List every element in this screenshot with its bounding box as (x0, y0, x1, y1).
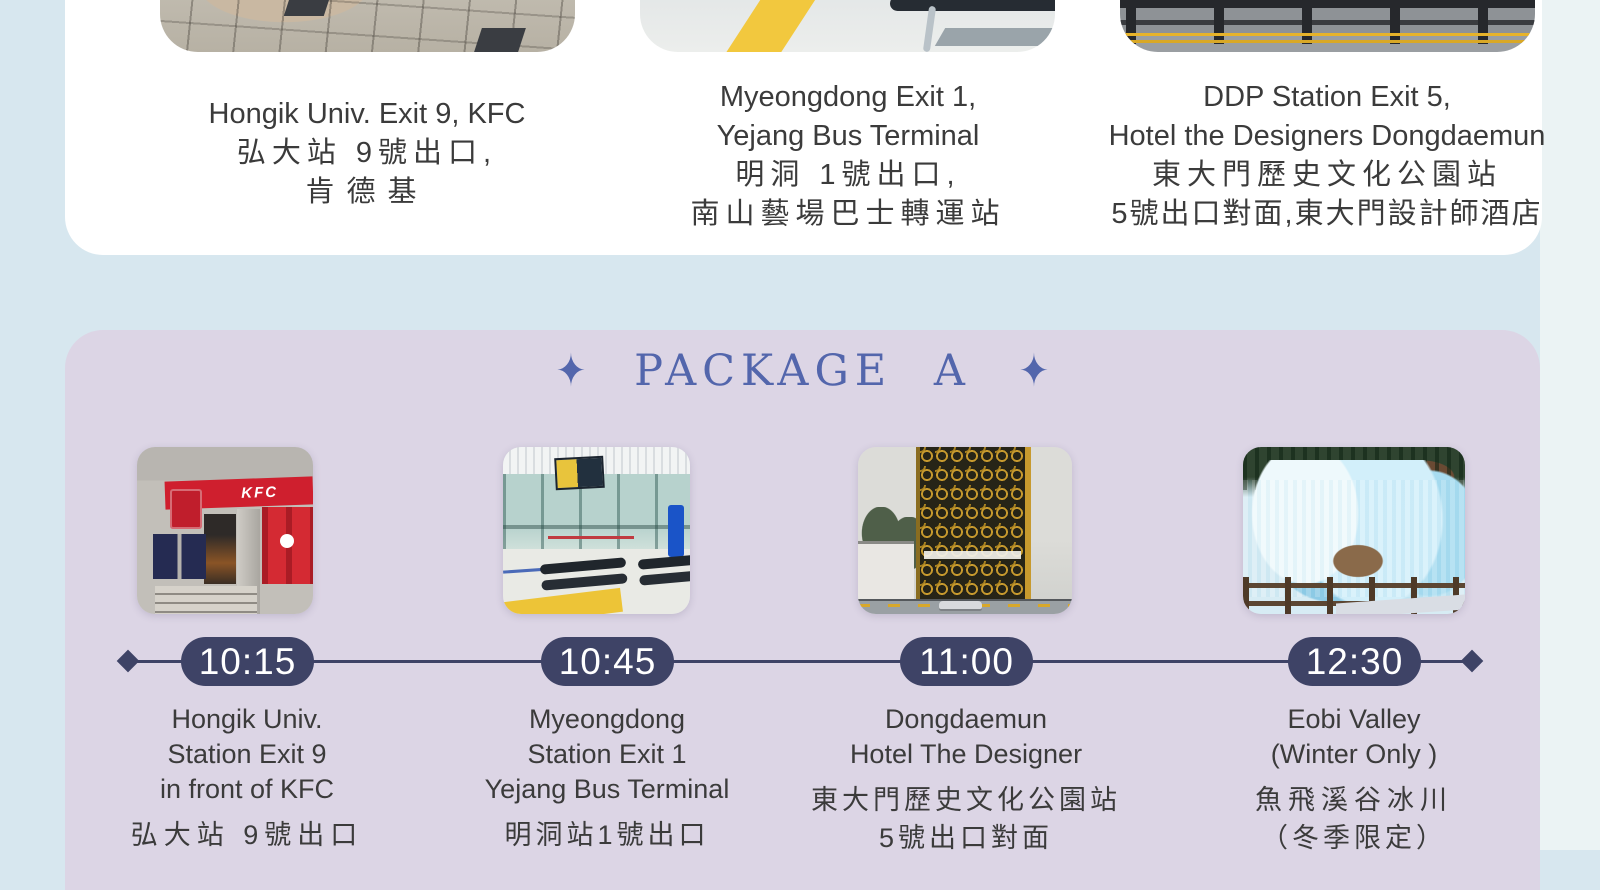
bench-seat (637, 554, 690, 570)
package-title: PACKAGE A (634, 346, 971, 396)
bench-platform (935, 28, 1055, 46)
designer-hotel-photo (858, 447, 1072, 614)
caption-line: in front of KFC (77, 772, 417, 807)
time-badge-1045: 10:45 (541, 637, 674, 686)
caption-line: Hongik Univ. (77, 702, 417, 737)
caption-line: DDP Station Exit 5, (1087, 78, 1567, 117)
caption-line: 明洞站1號出口 (437, 816, 777, 854)
pickup-locations-card: Hongik Univ. Exit 9, KFC 弘大站 9號出口, 肯德基 M… (65, 0, 1542, 255)
timeline (128, 660, 1472, 663)
caption-line: Dongdaemun (796, 702, 1136, 737)
caption-line: (Winter Only ) (1184, 737, 1524, 772)
caption-line: 5號出口對面,東大門設計師酒店 (1087, 195, 1567, 234)
bollard-posts (1126, 0, 1535, 44)
caption-line: 5號出口對面 (796, 819, 1136, 857)
floor-yellow-line (503, 588, 623, 614)
dark-pavement-tile (474, 28, 526, 52)
side-building (858, 541, 914, 606)
caption-line: 魚飛溪谷冰川 (1184, 781, 1524, 819)
ddp-street-photo (1120, 0, 1535, 52)
caption-line: Myeongdong Exit 1, (618, 78, 1078, 117)
caption-line: 弘大站 9號出口 (77, 816, 417, 854)
caption-line: Station Exit 9 (77, 737, 417, 772)
caption-line: Hotel The Designer (796, 737, 1136, 772)
rock-patch (1327, 541, 1389, 581)
car (939, 601, 982, 611)
pickup-caption-myeongdong: Myeongdong Exit 1, Yejang Bus Terminal 明… (618, 78, 1078, 234)
caption-line: 南山藝場巴士轉運站 (618, 195, 1078, 234)
kfc-sign-text: KFC (241, 483, 278, 501)
myeongdong-station-photo (640, 0, 1055, 52)
package-title-row: ✦ PACKAGE A ✦ (65, 343, 1540, 399)
caption-line: Yejang Bus Terminal (437, 772, 777, 807)
hongik-pavement-photo (160, 0, 575, 52)
info-screen (555, 456, 606, 491)
caption-line: 肯德基 (137, 173, 597, 212)
caption-line: 明洞 1號出口, (618, 156, 1078, 195)
kfc-storefront-photo: KFC (137, 447, 313, 614)
caption-line: Eobi Valley (1184, 702, 1524, 737)
queue-belt (548, 536, 634, 539)
caption-line: Myeongdong (437, 702, 777, 737)
road-yellow-lines (1120, 33, 1535, 36)
caption-line: Station Exit 1 (437, 737, 777, 772)
caption-line: （冬季限定） (1184, 819, 1524, 857)
stop-caption-eobi-valley: Eobi Valley (Winter Only ) 魚飛溪谷冰川 （冬季限定） (1184, 702, 1524, 857)
kfc-colonel-mark (280, 534, 294, 548)
sparkle-left-icon: ✦ (556, 349, 586, 394)
yejang-terminal-photo (503, 447, 690, 614)
time-badge-1230: 12:30 (1288, 637, 1421, 686)
bench-seat (540, 557, 627, 574)
dark-pavement-tile (284, 0, 332, 16)
kfc-logo (170, 489, 202, 529)
stop-caption-dongdaemun: Dongdaemun Hotel The Designer 東大門歷史文化公園站… (796, 702, 1136, 857)
glass-rail (503, 525, 690, 529)
hotel-sign (924, 551, 1020, 559)
caption-line: Hotel the Designers Dongdaemun (1087, 117, 1567, 156)
stop-caption-hongik: Hongik Univ. Station Exit 9 in front of … (77, 702, 417, 854)
caption-line: Yejang Bus Terminal (618, 117, 1078, 156)
blue-sign (668, 505, 685, 557)
stop-caption-myeongdong: Myeongdong Station Exit 1 Yejang Bus Ter… (437, 702, 777, 854)
eobi-valley-photo (1243, 447, 1465, 614)
kfc-entrance (204, 514, 236, 584)
package-a-panel: ✦ PACKAGE A ✦ KFC (65, 330, 1540, 890)
caption-line: 東大門歷史文化公園站 (796, 781, 1136, 819)
caption-line: Hongik Univ. Exit 9, KFC (137, 95, 597, 134)
caption-line: 弘大站 9號出口, (137, 134, 597, 173)
floor-yellow-line (647, 0, 827, 52)
pickup-caption-hongik: Hongik Univ. Exit 9, KFC 弘大站 9號出口, 肯德基 (137, 95, 597, 212)
pickup-caption-ddp: DDP Station Exit 5, Hotel the Designers … (1087, 78, 1567, 234)
entrance-steps (155, 586, 257, 614)
bench-seat (890, 0, 1055, 11)
caption-line: 東大門歷史文化公園站 (1087, 156, 1567, 195)
honeycomb-tower (916, 447, 1032, 602)
timeline-diamond-right-icon (1461, 650, 1484, 673)
timeline-diamond-left-icon (117, 650, 140, 673)
time-badge-1015: 10:15 (181, 637, 314, 686)
time-badge-1100: 11:00 (900, 637, 1033, 686)
sparkle-right-icon: ✦ (1019, 349, 1049, 394)
poster-boards (153, 534, 206, 579)
